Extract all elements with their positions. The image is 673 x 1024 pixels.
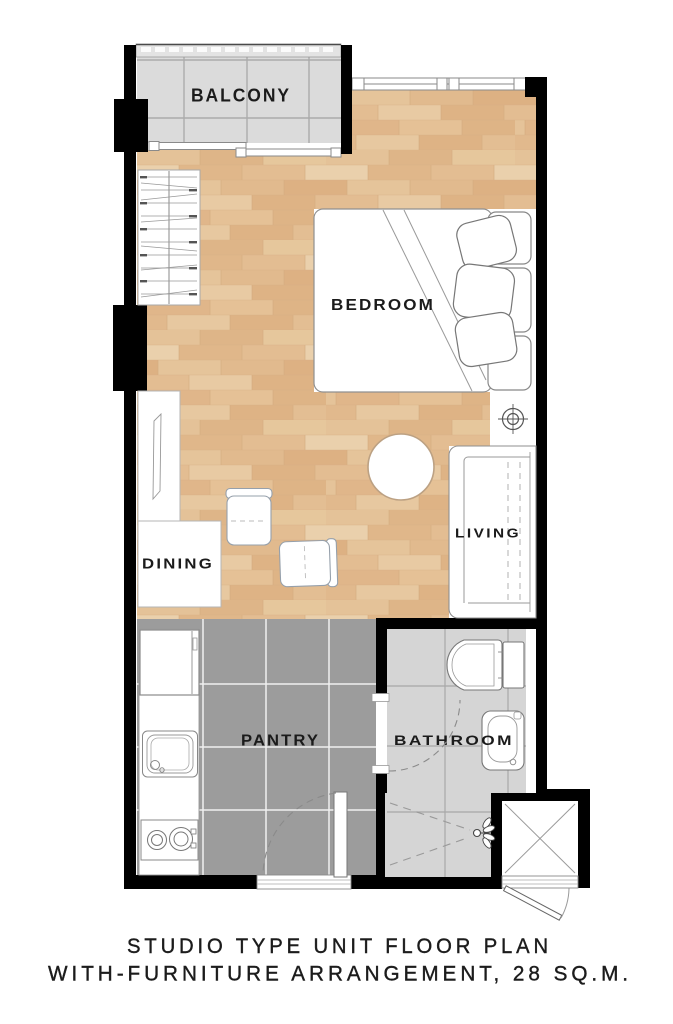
svg-text:BALCONY: BALCONY	[191, 86, 291, 106]
svg-text:LIVING: LIVING	[455, 527, 521, 541]
svg-text:STUDIO TYPE UNIT FLOOR PLAN: STUDIO TYPE UNIT FLOOR PLAN	[127, 935, 552, 958]
svg-text:BATHROOM: BATHROOM	[394, 732, 514, 748]
svg-text:DINING: DINING	[142, 556, 214, 573]
svg-text:PANTRY: PANTRY	[241, 733, 320, 750]
svg-text:BEDROOM: BEDROOM	[331, 297, 435, 314]
svg-text:WITH-FURNITURE ARRANGEMENT, 28: WITH-FURNITURE ARRANGEMENT, 28 SQ.M.	[48, 963, 632, 986]
